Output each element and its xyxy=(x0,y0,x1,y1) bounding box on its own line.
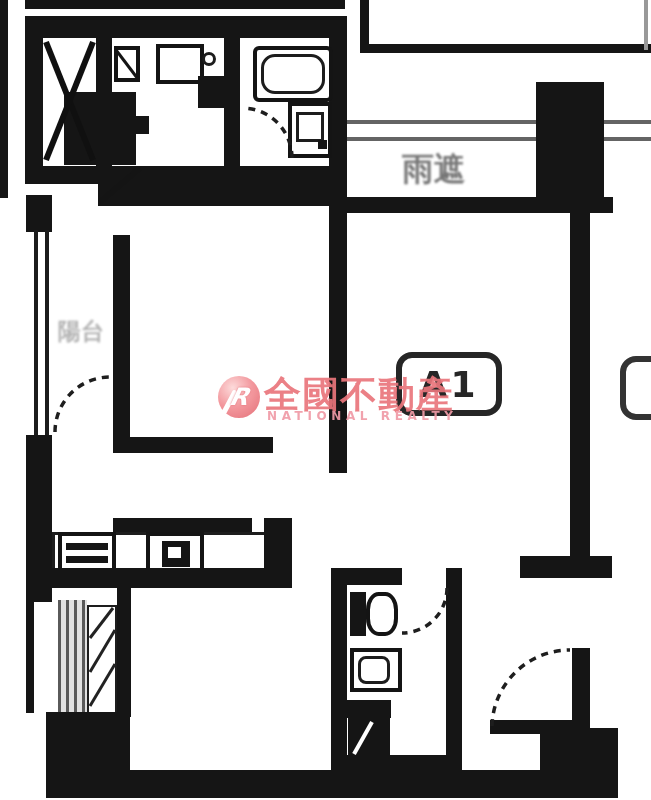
toilet-drain-dot xyxy=(318,140,327,149)
watermark-monogram: R xyxy=(227,383,251,411)
sink2-basin xyxy=(358,656,390,684)
left-boundary-line xyxy=(0,0,8,198)
kitchen-wall-stub xyxy=(264,518,292,588)
entry-door-arc xyxy=(492,650,570,726)
bath2-divider-wall xyxy=(331,700,391,718)
bath2-left-wall xyxy=(331,568,347,775)
bathroom-door-arc xyxy=(243,108,292,158)
entry-nook-wall xyxy=(520,556,612,578)
bedroom-left-wall xyxy=(113,235,130,453)
pipe-shaft-fill xyxy=(64,92,136,165)
duct-right-wall xyxy=(117,588,131,717)
pipe-duct-hatch-box xyxy=(87,605,117,715)
cabinet-fill xyxy=(198,76,226,108)
kitchen-sink-bar-2 xyxy=(66,556,108,563)
toilet2-icon xyxy=(366,592,398,636)
kitchen-bottom-wall xyxy=(26,568,292,588)
louver-panel xyxy=(58,600,87,713)
toilet2-tank xyxy=(350,592,366,636)
bath2-door-arc xyxy=(402,588,447,633)
left-wall-thin-low xyxy=(26,600,34,713)
neighbor-unit-badge-partial xyxy=(620,356,651,420)
watermark-logo-circle: R xyxy=(218,376,260,418)
right-edge-line xyxy=(644,0,648,50)
bathtub-inner xyxy=(261,54,325,94)
window-left xyxy=(34,230,49,436)
column-bottom-right xyxy=(540,728,618,798)
bath-divider-wall xyxy=(224,30,240,170)
faucet-icon xyxy=(202,52,216,66)
block-left-wall xyxy=(25,16,43,184)
left-corner-wall xyxy=(26,195,52,232)
stove-burner-center xyxy=(168,547,181,558)
bottom-wall xyxy=(46,770,546,798)
block-top-wall xyxy=(25,16,347,38)
bath2-top-wall xyxy=(331,568,402,585)
sink-icon xyxy=(156,44,204,84)
water-heater-fill xyxy=(348,718,390,760)
top-boundary-line xyxy=(25,0,345,9)
top-right-wall-line-horizontal xyxy=(360,44,651,53)
unit-right-wall xyxy=(570,213,590,560)
column-top-right xyxy=(536,82,604,206)
bedroom-top-wall xyxy=(98,166,347,206)
washbasin-icon xyxy=(114,46,140,82)
floor-plan: 雨遮 陽台 xyxy=(0,0,651,800)
right-wall-lower xyxy=(572,648,590,734)
watermark: R 全國不動產 NATIONAL REALTY xyxy=(218,370,458,428)
pipe-shaft-notch xyxy=(136,116,149,134)
bedroom-bottom-wall xyxy=(113,437,273,453)
toilet-bowl xyxy=(296,112,324,142)
bath2-right-wall xyxy=(446,568,462,775)
balcony-label: 陽台 xyxy=(58,316,104,347)
kitchen-sink-bar-1 xyxy=(66,543,108,550)
balcony-door-arc xyxy=(55,377,110,432)
entry-door-leaf xyxy=(490,720,572,734)
watermark-brand-en: NATIONAL REALTY xyxy=(267,409,458,423)
canopy-label: 雨遮 xyxy=(402,148,466,192)
block-bottom-left-wall xyxy=(25,166,100,184)
